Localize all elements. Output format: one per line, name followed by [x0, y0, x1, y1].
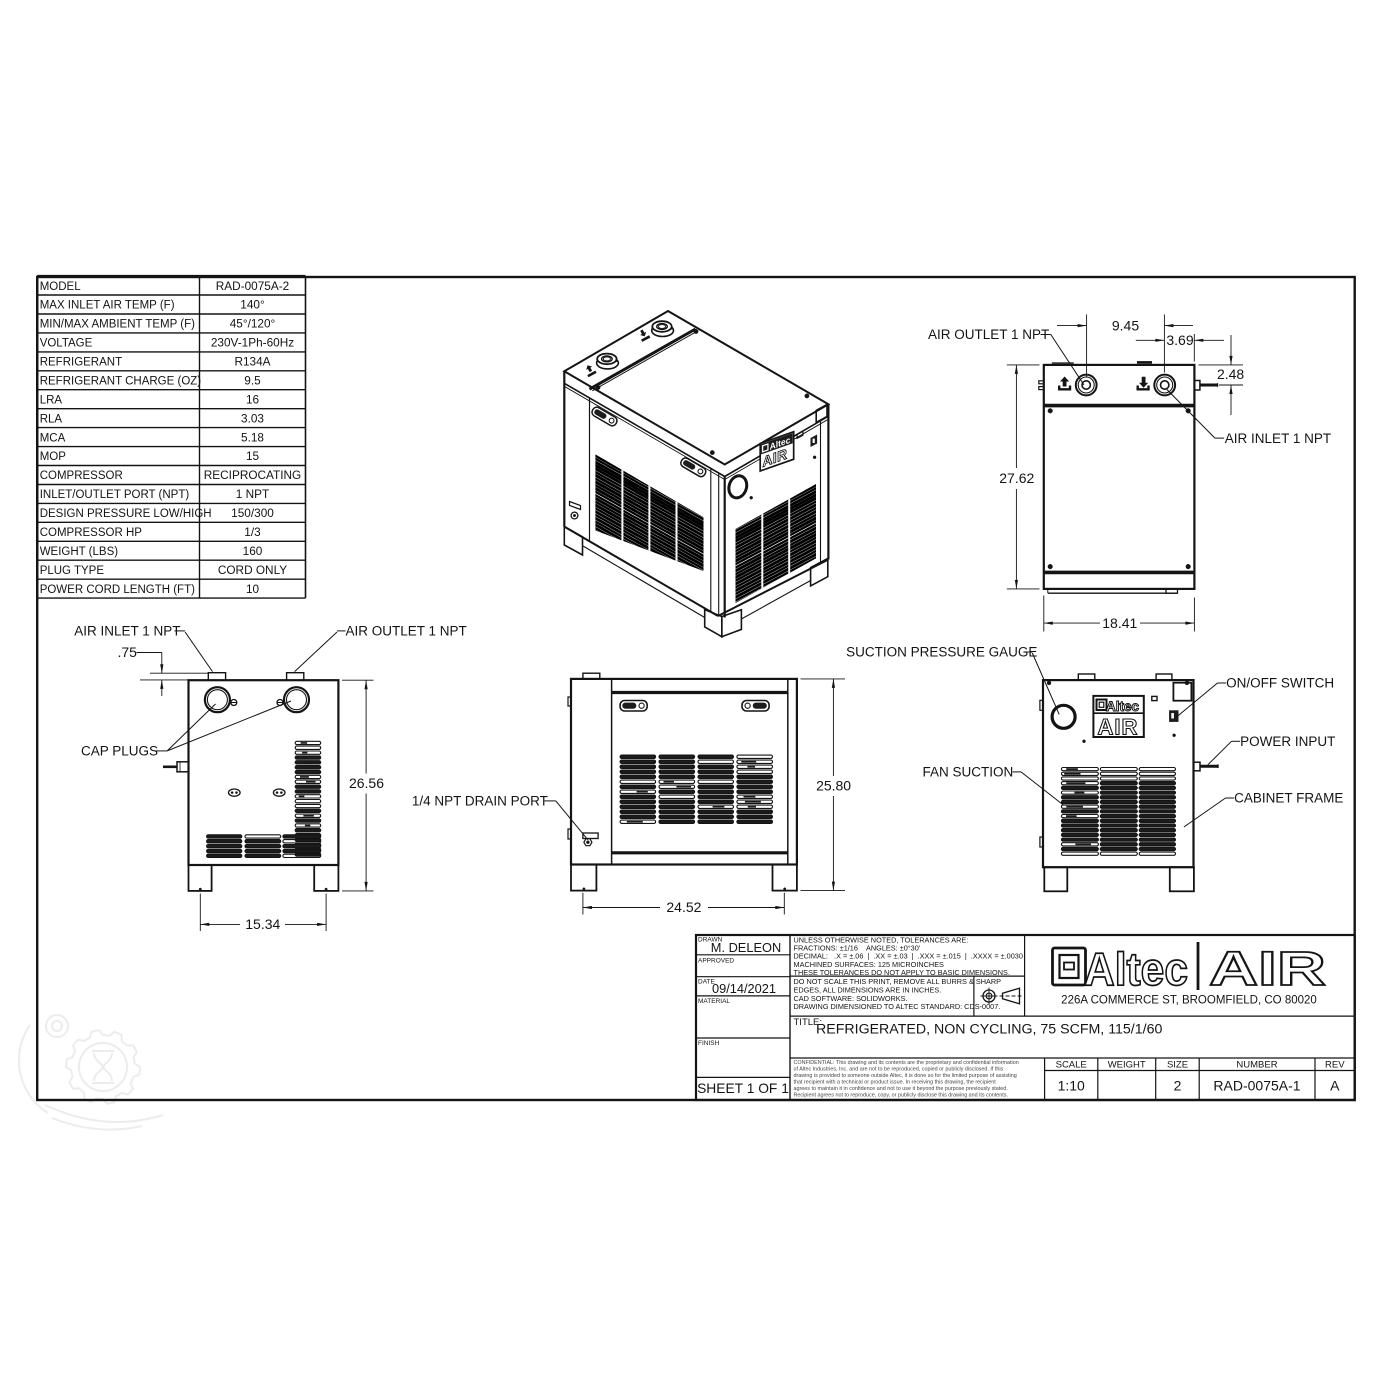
svg-text:1/3: 1/3 — [244, 525, 261, 539]
svg-text:2: 2 — [1174, 1078, 1182, 1094]
svg-text:15.34: 15.34 — [245, 916, 280, 932]
svg-text:R134A: R134A — [234, 355, 270, 369]
svg-text:5.18: 5.18 — [241, 430, 264, 444]
svg-text:REFRIGERANT: REFRIGERANT — [40, 357, 122, 369]
svg-text:M. DELEON: M. DELEON — [711, 940, 781, 955]
svg-text:agrees to maintain it in confi: agrees to maintain it in confidence and … — [794, 1086, 1008, 1092]
svg-text:3.69: 3.69 — [1166, 332, 1193, 348]
svg-text:A: A — [1330, 1078, 1340, 1094]
svg-text:230V-1Ph-60Hz: 230V-1Ph-60Hz — [211, 336, 294, 350]
svg-text:REFRIGERATED, NON CYCLING, 75: REFRIGERATED, NON CYCLING, 75 SCFM, 115/… — [816, 1022, 1162, 1038]
svg-text:1 NPT: 1 NPT — [236, 487, 269, 501]
svg-text:25.80: 25.80 — [816, 778, 851, 794]
svg-text:DRAWING DIMENSIONED TO ALTEC S: DRAWING DIMENSIONED TO ALTEC STANDARD: C… — [794, 1002, 1001, 1011]
svg-text:160: 160 — [243, 544, 263, 558]
svg-text:10: 10 — [246, 582, 260, 596]
svg-text:MATERIAL: MATERIAL — [698, 998, 730, 1005]
svg-text:POWER INPUT: POWER INPUT — [1240, 734, 1335, 749]
svg-text:WEIGHT: WEIGHT — [1108, 1060, 1146, 1071]
svg-text:MAX INLET AIR TEMP (F): MAX INLET AIR TEMP (F) — [40, 300, 175, 312]
svg-text:45°/120°: 45°/120° — [230, 317, 276, 331]
svg-text:AIR OUTLET 1 NPT: AIR OUTLET 1 NPT — [928, 327, 1049, 342]
svg-text:26.56: 26.56 — [349, 775, 384, 791]
svg-text:AIR OUTLET 1 NPT: AIR OUTLET 1 NPT — [346, 624, 467, 639]
svg-text:AIR: AIR — [1098, 715, 1139, 740]
svg-text:that recipient with a technica: that recipient with a technical or produ… — [794, 1080, 997, 1086]
svg-text:COMPRESSOR HP: COMPRESSOR HP — [40, 527, 143, 539]
svg-text:27.62: 27.62 — [999, 470, 1034, 486]
svg-text:LRA: LRA — [40, 394, 63, 406]
svg-text:of Altec Industries, Inc. and: of Altec Industries, Inc. and are not to… — [794, 1066, 1004, 1072]
svg-text:CABINET FRAME: CABINET FRAME — [1234, 791, 1343, 806]
svg-text:WEIGHT (LBS): WEIGHT (LBS) — [40, 546, 119, 558]
svg-text:9.45: 9.45 — [1112, 317, 1139, 333]
svg-text:CORD ONLY: CORD ONLY — [218, 563, 287, 577]
svg-text:18.41: 18.41 — [1102, 615, 1137, 631]
svg-text:Altec: Altec — [1106, 699, 1140, 714]
svg-text:Altec: Altec — [1084, 943, 1188, 995]
svg-text:MIN/MAX AMBIENT TEMP (F): MIN/MAX AMBIENT TEMP (F) — [40, 319, 195, 331]
svg-text:AIR INLET 1 NPT: AIR INLET 1 NPT — [1225, 431, 1331, 446]
svg-text:RECIPROCATING: RECIPROCATING — [204, 468, 301, 482]
svg-text:09/14/2021: 09/14/2021 — [712, 981, 776, 996]
svg-text:150/300: 150/300 — [231, 506, 274, 520]
svg-text:AIR: AIR — [1209, 943, 1326, 996]
svg-text:MCA: MCA — [40, 432, 66, 444]
svg-text:RAD-0075A-2: RAD-0075A-2 — [216, 279, 289, 293]
svg-text:226A COMMERCE ST, BROOMFIELD,: 226A COMMERCE ST, BROOMFIELD, CO 80020 — [1061, 995, 1317, 1007]
svg-text:CAP PLUGS: CAP PLUGS — [81, 744, 158, 759]
svg-text:INLET/OUTLET PORT (NPT): INLET/OUTLET PORT (NPT) — [40, 489, 190, 501]
svg-text:REFRIGERANT CHARGE (OZ): REFRIGERANT CHARGE (OZ) — [40, 376, 202, 388]
svg-text:DESIGN PRESSURE LOW/HIGH: DESIGN PRESSURE LOW/HIGH — [40, 508, 212, 520]
svg-text:FAN SUCTION: FAN SUCTION — [923, 764, 1014, 779]
svg-text:SHEET 1 OF 1: SHEET 1 OF 1 — [697, 1081, 789, 1096]
svg-text:POWER CORD LENGTH (FT): POWER CORD LENGTH (FT) — [40, 584, 195, 596]
svg-text:MOP: MOP — [40, 451, 67, 463]
svg-text:140°: 140° — [240, 298, 265, 312]
svg-text:15: 15 — [246, 449, 260, 463]
svg-text:24.52: 24.52 — [666, 899, 701, 915]
svg-text:RLA: RLA — [40, 413, 63, 425]
svg-text:SIZE: SIZE — [1167, 1060, 1188, 1071]
svg-text:drawing is provided to someone: drawing is provided to someone outside A… — [794, 1073, 1017, 1079]
svg-text:2.48: 2.48 — [1217, 366, 1244, 382]
svg-text:SCALE: SCALE — [1056, 1060, 1087, 1071]
svg-text:1/4 NPT DRAIN PORT: 1/4 NPT DRAIN PORT — [412, 794, 548, 809]
svg-text:APPROVED: APPROVED — [698, 958, 734, 965]
svg-text:16: 16 — [246, 392, 260, 406]
svg-text:SUCTION PRESSURE GAUGE: SUCTION PRESSURE GAUGE — [846, 645, 1037, 660]
svg-text:CONFIDENTIAL: This drawing and: CONFIDENTIAL: This drawing and its conte… — [794, 1060, 1019, 1066]
svg-text:1:10: 1:10 — [1058, 1078, 1085, 1094]
svg-text:AIR INLET 1 NPT: AIR INLET 1 NPT — [74, 624, 180, 639]
svg-text:THESE TOLERANCES DO NOT APPLY: THESE TOLERANCES DO NOT APPLY TO BASIC D… — [794, 968, 1010, 977]
svg-text:PLUG TYPE: PLUG TYPE — [40, 565, 105, 577]
svg-text:9.5: 9.5 — [244, 374, 261, 388]
svg-text:RAD-0075A-1: RAD-0075A-1 — [1213, 1078, 1300, 1094]
svg-text:REV: REV — [1325, 1060, 1345, 1071]
svg-text:MODEL: MODEL — [40, 281, 81, 293]
svg-text:NUMBER: NUMBER — [1236, 1060, 1277, 1071]
svg-text:Recipient agrees not to reprod: Recipient agrees not to reproduce, copy,… — [794, 1093, 1008, 1099]
svg-text:COMPRESSOR: COMPRESSOR — [40, 470, 123, 482]
svg-text:3.03: 3.03 — [241, 411, 264, 425]
svg-text:FINISH: FINISH — [698, 1040, 720, 1047]
svg-text:ON/OFF SWITCH: ON/OFF SWITCH — [1226, 676, 1334, 691]
svg-text:.75: .75 — [118, 644, 138, 660]
svg-text:VOLTAGE: VOLTAGE — [40, 338, 93, 350]
